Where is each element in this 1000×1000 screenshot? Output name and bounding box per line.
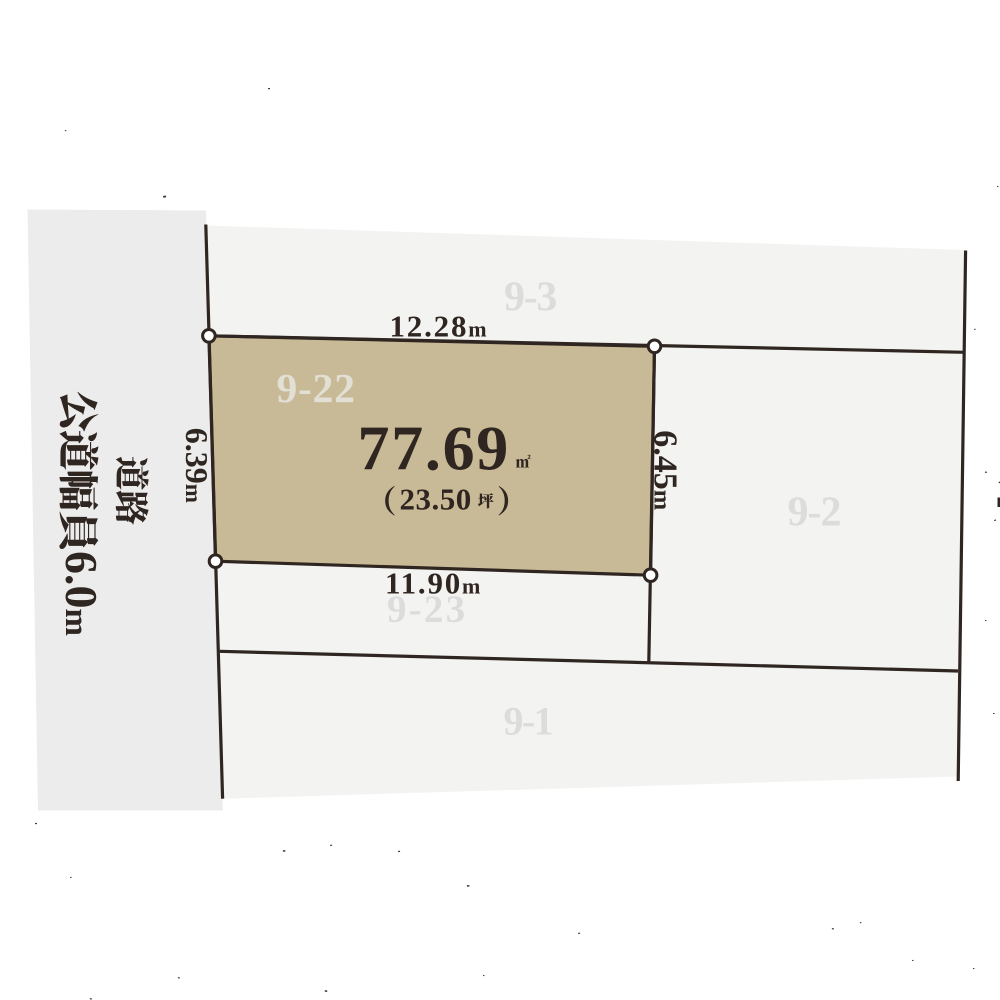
svg-text:9-1: 9-1 [504, 699, 553, 744]
svg-text:23.50: 23.50 [400, 482, 472, 517]
svg-text:77.69: 77.69 [358, 413, 511, 484]
svg-text:9-2: 9-2 [788, 490, 841, 536]
svg-text:9-23: 9-23 [387, 588, 467, 631]
svg-text:9-22: 9-22 [277, 365, 356, 411]
svg-text:9-3: 9-3 [504, 275, 556, 321]
